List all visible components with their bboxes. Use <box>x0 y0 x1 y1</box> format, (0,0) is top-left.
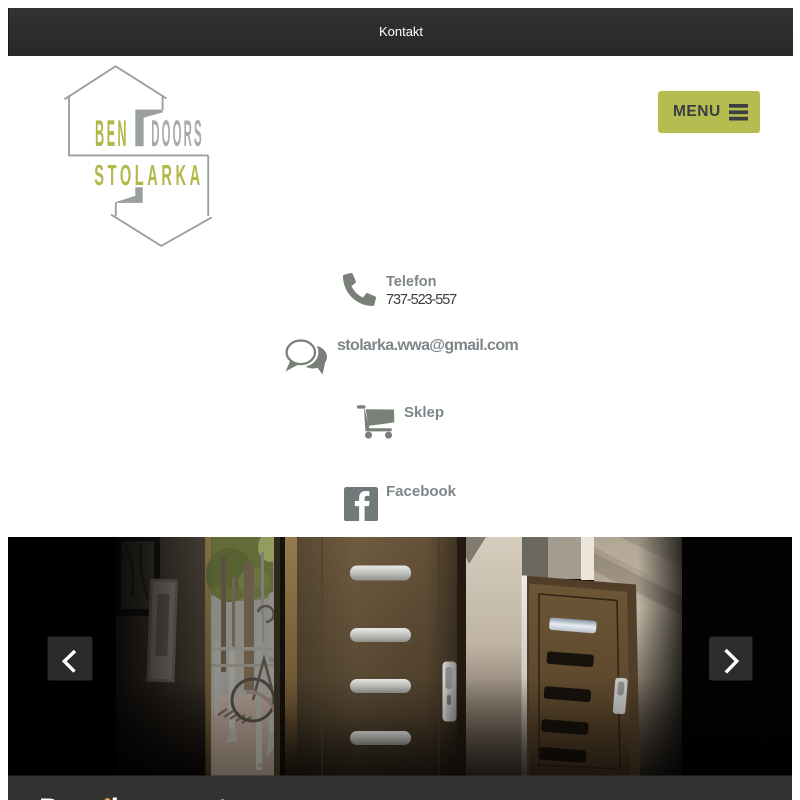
svg-text:BEN: BEN <box>95 113 129 154</box>
svg-text:DOORS: DOORS <box>151 113 204 154</box>
svg-text:Drzwi zewnętrzne: Drzwi zewnętrzne <box>39 793 289 800</box>
svg-text:STOLARKA: STOLARKA <box>94 160 204 192</box>
